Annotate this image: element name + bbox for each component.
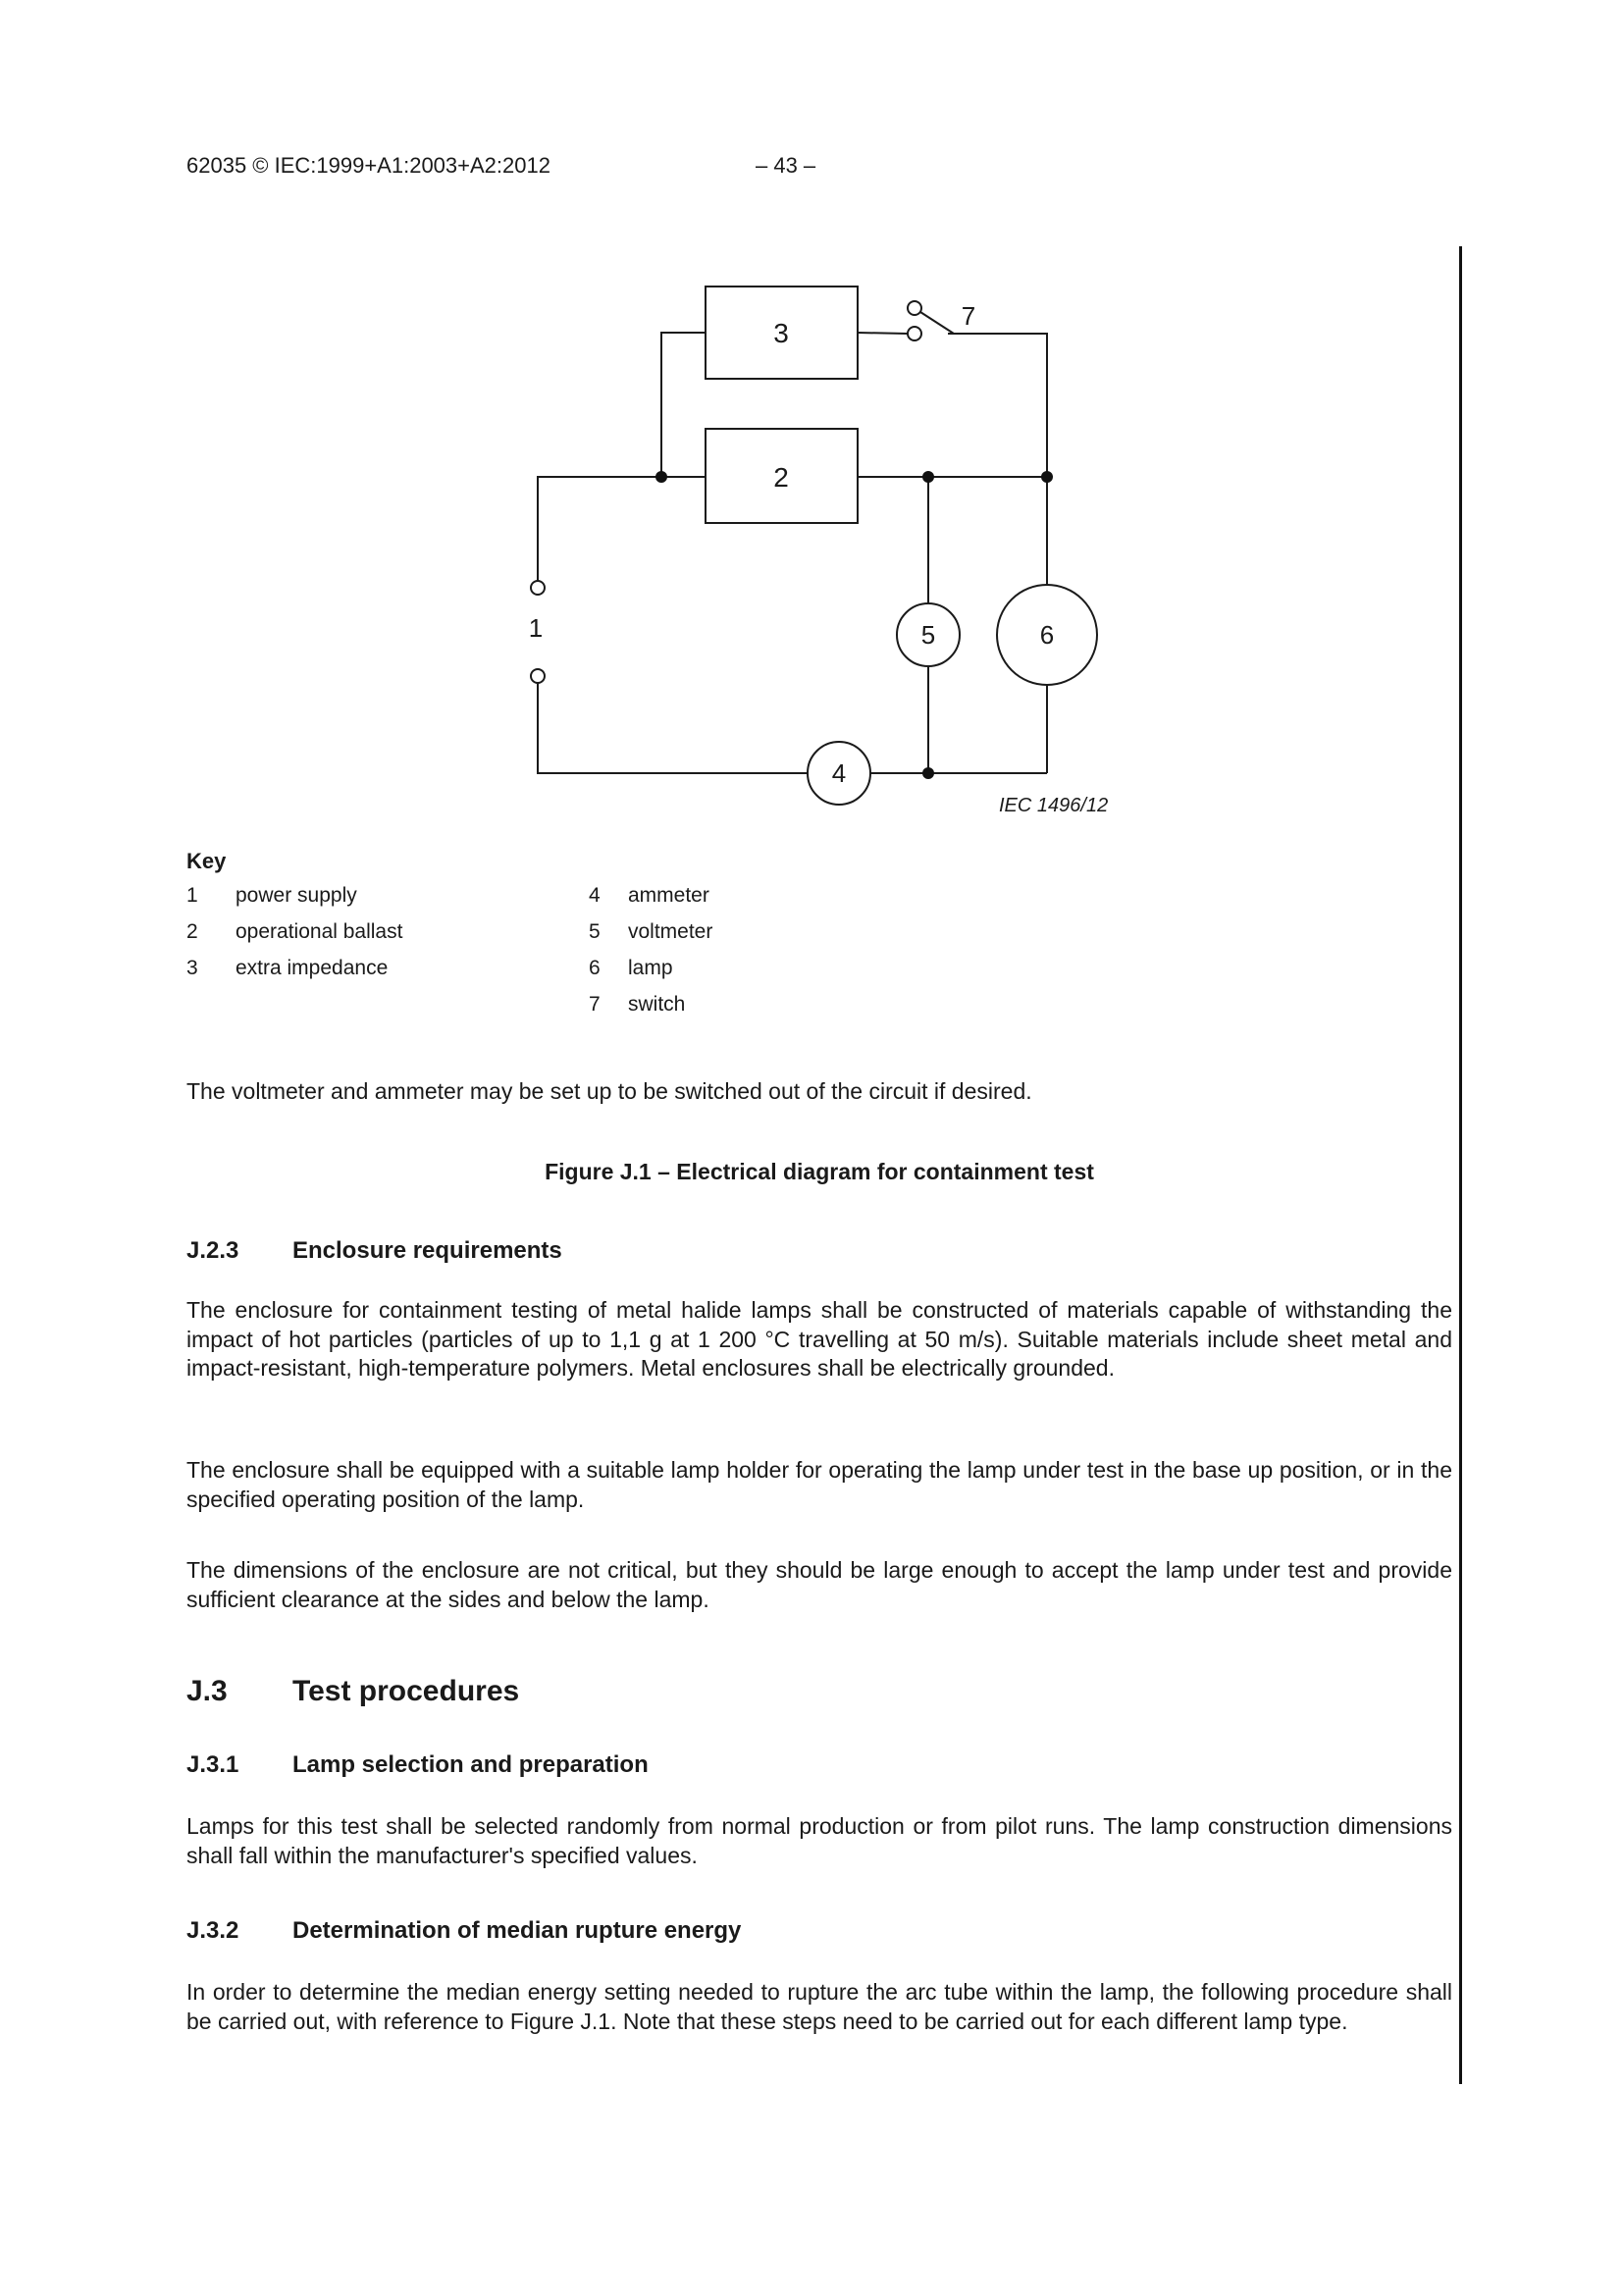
wire-branch-impedance xyxy=(661,333,706,477)
label-ammeter: 4 xyxy=(832,758,846,788)
terminal-icon xyxy=(531,669,545,683)
key-item-number: 7 xyxy=(589,986,628,1022)
section-title: Test procedures xyxy=(292,1675,519,1707)
key-item: 2operational ballast xyxy=(186,913,402,950)
key-item-label: ammeter xyxy=(628,884,709,907)
key-item: 5voltmeter xyxy=(589,913,712,950)
label-lamp: 6 xyxy=(1040,620,1054,650)
key-item-number: 3 xyxy=(186,950,236,986)
key-item-number: 5 xyxy=(589,913,628,950)
circuit-diagram: 3 2 1 5 6 4 7 IEC 1496/12 xyxy=(491,226,1138,839)
junction-dot xyxy=(655,471,667,483)
wire-switch-right xyxy=(948,334,1047,477)
section-number: J.3 xyxy=(186,1675,292,1708)
key-item-label: operational ballast xyxy=(236,920,402,943)
key-item-number: 6 xyxy=(589,950,628,986)
label-extra-impedance: 3 xyxy=(773,318,789,348)
change-bar xyxy=(1459,246,1462,2084)
key-column-right: 4ammeter 5voltmeter 6lamp 7switch xyxy=(589,877,712,1022)
junction-dot xyxy=(922,471,934,483)
header-page-number: – 43 – xyxy=(756,154,815,178)
paragraph: The enclosure for containment testing of… xyxy=(186,1296,1452,1383)
wire-to-switch xyxy=(858,333,908,334)
paragraph: In order to determine the median energy … xyxy=(186,1978,1452,2036)
section-number: J.2.3 xyxy=(186,1237,292,1265)
section-number: J.3.1 xyxy=(186,1751,292,1779)
paragraph: The dimensions of the enclosure are not … xyxy=(186,1556,1452,1614)
paragraph: The enclosure shall be equipped with a s… xyxy=(186,1456,1452,1514)
switch-terminal-icon xyxy=(908,327,921,340)
key-item: 1power supply xyxy=(186,877,402,913)
switch-terminal-icon xyxy=(908,301,921,315)
section-heading-j32: J.3.2Determination of median rupture ene… xyxy=(186,1917,741,1945)
key-item-label: lamp xyxy=(628,957,673,979)
key-item-number: 2 xyxy=(186,913,236,950)
figure-caption: Figure J.1 – Electrical diagram for cont… xyxy=(186,1159,1452,1185)
key-item-label: power supply xyxy=(236,884,357,907)
key-item-label: switch xyxy=(628,993,685,1016)
key-item-number: 4 xyxy=(589,877,628,913)
label-switch: 7 xyxy=(962,301,975,331)
iec-figure-reference: IEC 1496/12 xyxy=(999,795,1108,816)
key-item: 3extra impedance xyxy=(186,950,402,986)
key-item: 7switch xyxy=(589,986,712,1022)
section-heading-j3: J.3Test procedures xyxy=(186,1675,519,1708)
terminal-icon xyxy=(531,581,545,595)
paragraph: Lamps for this test shall be selected ra… xyxy=(186,1812,1452,1870)
key-item-label: extra impedance xyxy=(236,957,388,979)
section-title: Enclosure requirements xyxy=(292,1237,562,1264)
section-heading-j31: J.3.1Lamp selection and preparation xyxy=(186,1751,649,1779)
figure-note: The voltmeter and ammeter may be set up … xyxy=(186,1077,1032,1107)
header-reference: 62035 © IEC:1999+A1:2003+A2:2012 xyxy=(186,154,550,178)
section-title: Lamp selection and preparation xyxy=(292,1751,649,1778)
key-title: Key xyxy=(186,849,226,874)
label-ballast: 2 xyxy=(773,462,789,493)
key-column-left: 1power supply 2operational ballast 3extr… xyxy=(186,877,402,986)
label-voltmeter: 5 xyxy=(921,620,935,650)
document-page: 62035 © IEC:1999+A1:2003+A2:2012 – 43 – xyxy=(0,0,1623,2296)
key-item-number: 1 xyxy=(186,877,236,913)
section-title: Determination of median rupture energy xyxy=(292,1917,741,1944)
key-item: 6lamp xyxy=(589,950,712,986)
junction-dot xyxy=(922,767,934,779)
label-power-supply: 1 xyxy=(529,613,543,643)
wire-left-top xyxy=(538,477,706,581)
section-number: J.3.2 xyxy=(186,1917,292,1945)
section-heading-j23: J.2.3Enclosure requirements xyxy=(186,1237,562,1265)
switch-blade-icon xyxy=(920,312,954,334)
key-item-label: voltmeter xyxy=(628,920,712,943)
junction-dot xyxy=(1041,471,1053,483)
wire-left-bottom xyxy=(538,683,808,773)
key-item: 4ammeter xyxy=(589,877,712,913)
